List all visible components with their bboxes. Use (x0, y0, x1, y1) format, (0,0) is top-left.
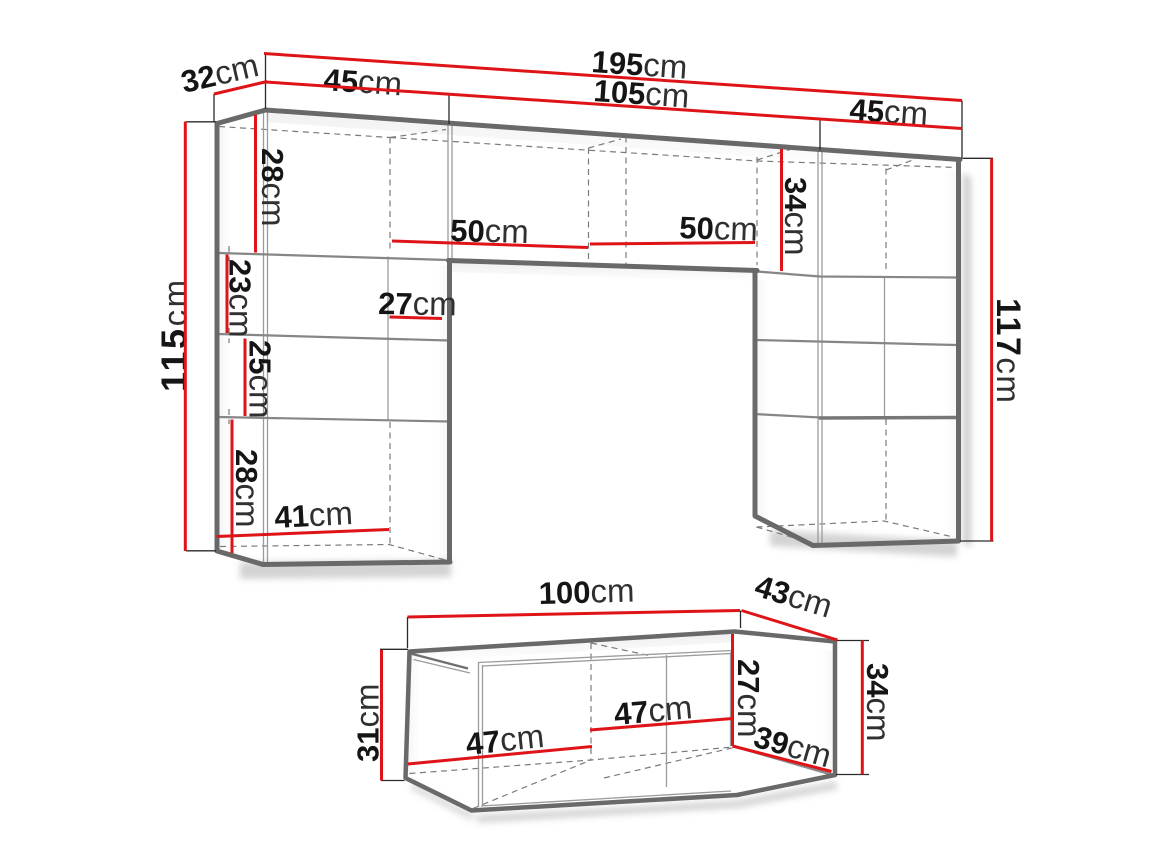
svg-text:100cm: 100cm (538, 572, 635, 611)
svg-text:25cm: 25cm (243, 340, 280, 418)
svg-text:115cm: 115cm (154, 277, 195, 392)
svg-text:117cm: 117cm (989, 298, 1027, 404)
svg-text:31cm: 31cm (349, 684, 386, 762)
svg-text:34cm: 34cm (860, 663, 897, 741)
svg-text:28cm: 28cm (255, 148, 292, 226)
svg-text:41cm: 41cm (273, 494, 353, 535)
svg-text:34cm: 34cm (778, 177, 815, 255)
svg-text:45cm: 45cm (323, 60, 404, 102)
svg-text:28cm: 28cm (229, 449, 266, 527)
